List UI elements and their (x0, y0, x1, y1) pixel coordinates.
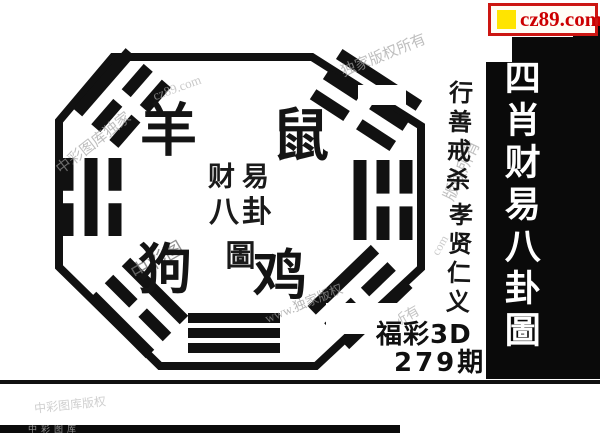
trigram-line (88, 292, 154, 358)
trigram-left-side (61, 158, 122, 236)
bottom-black-strip: 中彩图库 (0, 425, 400, 433)
trigram-line (105, 275, 138, 308)
issue-period: 279期 (394, 350, 486, 376)
trigram-line (138, 308, 171, 341)
zodiac-sheep: 羊 (140, 103, 197, 160)
white-patch (358, 85, 406, 105)
site-badge[interactable]: cz89.com (488, 3, 598, 36)
trigram-line (188, 343, 280, 353)
trigram-line (91, 99, 122, 132)
bagua-chart-page: 羊 鼠 狗 鸡 财易 八卦圖 行善戒杀 孝贤仁义 福彩3D 279期 四肖财易八… (0, 0, 600, 433)
motto-column-bottom: 孝贤仁义 (438, 201, 476, 318)
trigram-line (400, 160, 413, 194)
yellow-square-icon (497, 10, 516, 29)
trigram-line (109, 115, 140, 148)
trigram-line (85, 158, 98, 236)
trigram-line (188, 313, 280, 323)
trigram-bottom-middle (188, 313, 280, 353)
site-badge-label: cz89.com (520, 9, 600, 30)
sidebar: 四肖财易八卦圖 (486, 37, 600, 379)
trigram-line (377, 160, 390, 194)
trigram-line (122, 64, 153, 97)
motto-column-top: 行善戒杀 (438, 79, 476, 196)
zodiac-dog: 狗 (138, 243, 192, 297)
center-title-line2: 八卦圖 (194, 187, 290, 275)
trigram-line (109, 203, 122, 236)
sidebar-white-notch (486, 37, 512, 62)
game-name: 福彩3D (376, 322, 472, 348)
bottom-divider-line (0, 380, 600, 384)
trigram-line (73, 48, 135, 116)
trigram-line (109, 158, 122, 191)
strip-watermark-text: 中彩图库 (28, 425, 400, 433)
sidebar-title: 四肖财易八卦圖 (500, 59, 538, 369)
trigram-line (354, 160, 367, 240)
trigram-line (377, 206, 390, 240)
trigram-right-side (354, 160, 413, 240)
trigram-line (356, 119, 396, 151)
trigram-line (188, 328, 280, 338)
trigram-line (61, 158, 74, 191)
trigram-line (61, 203, 74, 236)
trigram-line (400, 206, 413, 240)
